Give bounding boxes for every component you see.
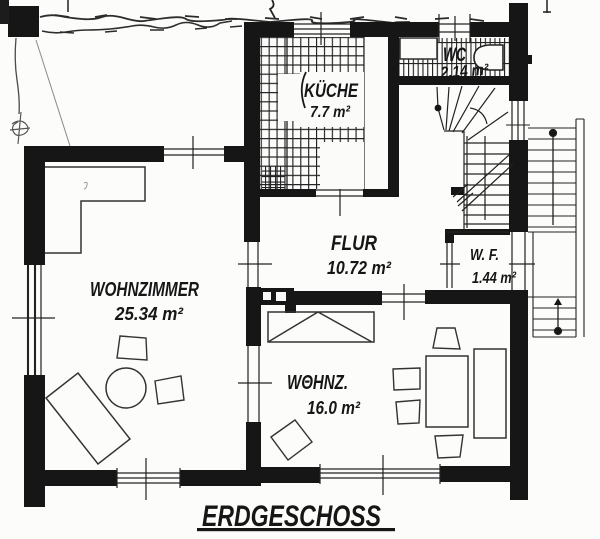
svg-text:10.72 m²: 10.72 m² [327,258,392,278]
svg-text:7.7 m²: 7.7 m² [310,104,351,121]
svg-text:16.0 m²: 16.0 m² [307,398,361,418]
svg-text:W. F.: W. F. [470,247,499,264]
svg-text:WOHNZIMMER: WOHNZIMMER [90,279,199,301]
svg-text:FLUR: FLUR [331,232,378,255]
svg-text:KÜCHE: KÜCHE [304,81,359,102]
svg-text:1.44 m²: 1.44 m² [472,270,517,287]
svg-text:WΘHNZ.: WΘHNZ. [287,372,348,394]
svg-text:2.14 m²: 2.14 m² [439,62,490,82]
svg-text:25.34 m²: 25.34 m² [114,304,184,324]
